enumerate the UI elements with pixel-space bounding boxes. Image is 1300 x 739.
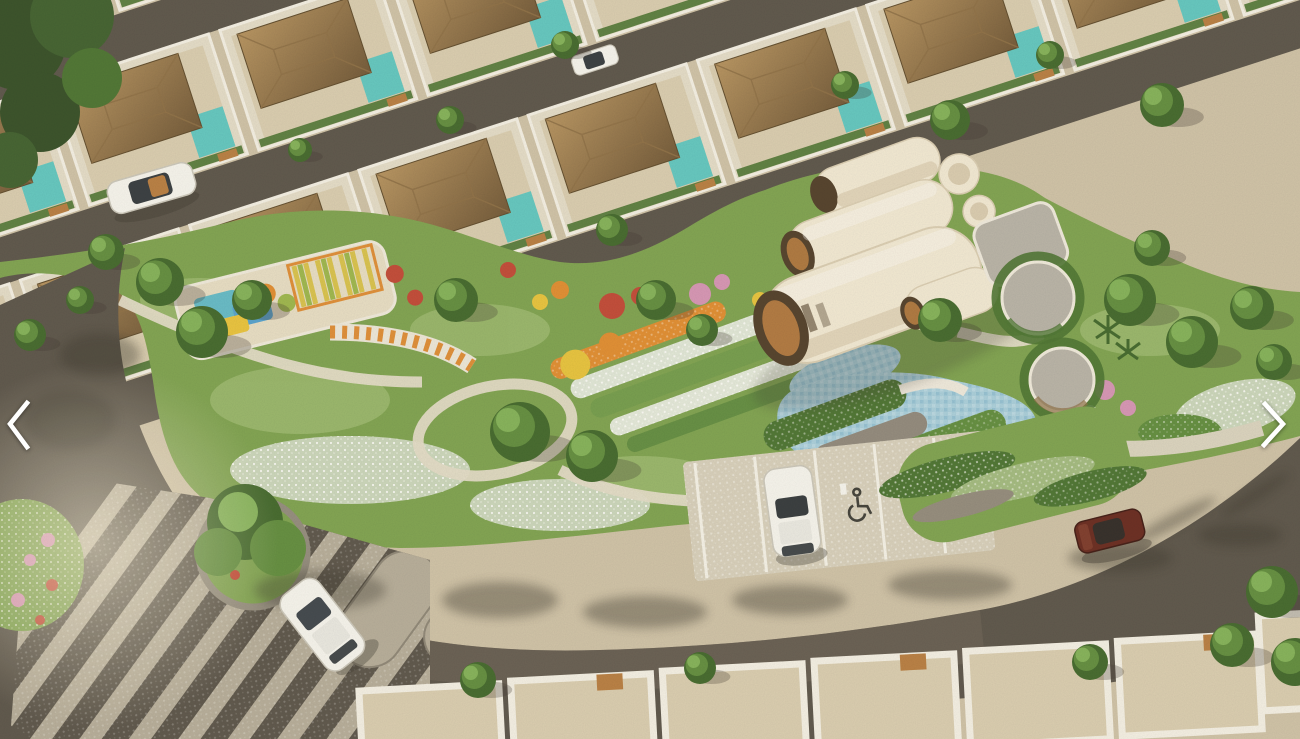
film-grain (0, 0, 1300, 739)
aerial-render-image (0, 0, 1300, 739)
chevron-left-icon (2, 397, 36, 453)
chevron-right-icon (1256, 397, 1290, 453)
image-carousel (0, 0, 1300, 739)
carousel-next-button[interactable] (1256, 397, 1290, 453)
carousel-prev-button[interactable] (2, 397, 36, 453)
